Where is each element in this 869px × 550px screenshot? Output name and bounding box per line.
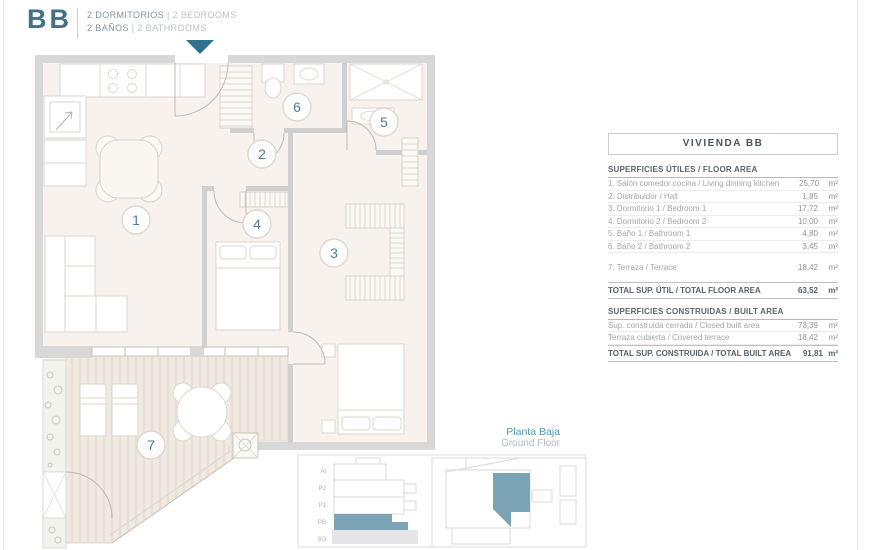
useful-area-header: SUPERFICIES ÚTILES / FLOOR AREA — [608, 165, 838, 178]
room-label-3: 3 — [320, 239, 348, 267]
spec-line-bathrooms: 2 BAÑOS | 2 BATHROOMS — [87, 22, 237, 35]
svg-text:1: 1 — [132, 212, 140, 228]
svg-text:3: 3 — [330, 245, 338, 261]
header-divider — [77, 8, 78, 38]
table-row-terrace: 7. Terraza / Terrace18,42m² — [608, 262, 838, 274]
svg-text:5: 5 — [380, 114, 388, 130]
table-row: 1. Salón comedor cocina / Living dinning… — [608, 178, 838, 191]
plan-sheet: BB 2 DORMITORIOS | 2 BEDROOMS 2 BAÑOS | … — [0, 0, 869, 550]
hall-closet — [220, 66, 252, 128]
lounger-2 — [112, 384, 138, 436]
terrace-window-band — [92, 347, 288, 356]
floor-caption-es: Planta Baja — [501, 427, 560, 438]
room-label-1: 1 — [122, 206, 150, 234]
planter — [233, 433, 258, 458]
bedroom2-wardrobe — [240, 192, 288, 207]
room-label-5: 5 — [370, 108, 398, 136]
area-table: VIVIENDA BB SUPERFICIES ÚTILES / FLOOR A… — [608, 133, 838, 362]
unit-spec: 2 DORMITORIOS | 2 BEDROOMS 2 BAÑOS | 2 B… — [87, 9, 237, 35]
unit-code-logo: BB — [27, 4, 72, 35]
table-row: Sup. construida cerrada / Closed built a… — [608, 320, 838, 333]
svg-text:7: 7 — [147, 437, 155, 453]
table-row: 2. Distribuidor / Hall1,85m² — [608, 191, 838, 204]
lounger-1 — [80, 384, 106, 436]
table-row: 6. Baño 2 / Bathroom 23,45m² — [608, 241, 838, 254]
total-built-area-row: TOTAL SUP. CONSTRUIDA / TOTAL BUILT AREA… — [608, 345, 838, 362]
floor-caption-en: Ground Floor — [501, 438, 560, 449]
room-label-2: 2 — [248, 140, 276, 168]
key-plan: At P2 P1 PB SO — [295, 452, 590, 550]
area-table-title: VIVIENDA BB — [608, 133, 838, 155]
total-floor-area-row: TOTAL SUP. ÚTIL / TOTAL FLOOR AREA63,52m… — [608, 282, 838, 299]
entrance-arrow-icon — [186, 40, 214, 54]
table-row: Terraza cubierta / Covered terrace18,42m… — [608, 332, 838, 345]
page-right-border — [857, 0, 858, 550]
built-area-header: SUPERFICIES CONSTRUIDAS / BUILT AREA — [608, 307, 838, 320]
svg-text:P1: P1 — [319, 503, 327, 509]
svg-text:P2: P2 — [319, 486, 327, 492]
room-label-4: 4 — [243, 210, 271, 238]
page-left-border — [3, 0, 4, 550]
elevation-highlight-pb — [334, 514, 392, 530]
svg-text:PB: PB — [318, 520, 326, 526]
table-row: 4. Dormitorio 2 / Bedroom 210,00m² — [608, 216, 838, 229]
svg-text:6: 6 — [293, 99, 301, 115]
room-label-6: 6 — [283, 93, 311, 121]
svg-text:At: At — [320, 469, 326, 475]
terrace-table — [173, 383, 231, 441]
table-row: 3. Dormitorio 1 / Bedroom 117,72m² — [608, 203, 838, 216]
floor-caption: Planta Baja Ground Floor — [501, 427, 560, 449]
table-row: 5. Baño 1 / Bathroom 14,80m² — [608, 228, 838, 241]
dining-table — [96, 136, 162, 202]
svg-text:4: 4 — [253, 216, 261, 232]
svg-text:SO: SO — [317, 537, 326, 543]
bedroom1-wardrobe — [390, 228, 404, 276]
svg-text:2: 2 — [258, 146, 266, 162]
spec-line-bedrooms: 2 DORMITORIOS | 2 BEDROOMS — [87, 9, 237, 22]
room-label-7: 7 — [137, 431, 165, 459]
